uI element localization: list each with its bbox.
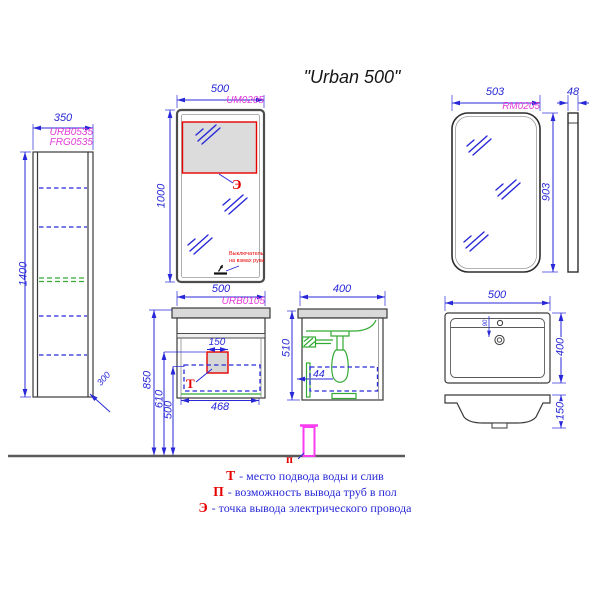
legend-row-pipes: П- возможность вывода труб в пол bbox=[130, 483, 480, 499]
sink-depth-label: 400 bbox=[556, 337, 567, 357]
um-height-label: 1000 bbox=[157, 184, 168, 208]
um-width-label: 500 bbox=[211, 84, 229, 95]
vanity-front-drawing bbox=[149, 291, 270, 456]
power-point-marker: Э bbox=[232, 179, 242, 193]
access-size-label: 150 bbox=[209, 338, 226, 348]
floor-and-pipe-drawing bbox=[8, 426, 405, 460]
drawing-canvas: "Urban 500" 350 1400 300 URB0535 FRG0535… bbox=[0, 0, 600, 600]
side-width-label: 400 bbox=[333, 284, 351, 295]
um-code: UM0205 bbox=[226, 96, 264, 106]
height-shelf-label: 500 bbox=[164, 401, 175, 419]
legend-row-water: Т- место подвода воды и слив bbox=[130, 467, 480, 483]
water-access-zone bbox=[207, 352, 228, 373]
sink-profile-drawing bbox=[445, 395, 566, 428]
rm-mirror-drawing bbox=[452, 95, 589, 272]
side-countertop bbox=[298, 309, 387, 318]
side-body bbox=[302, 318, 383, 400]
cabinet-height-label: 1400 bbox=[19, 262, 30, 286]
water-point-marker: Т bbox=[186, 377, 195, 390]
tall-cabinet-drawing bbox=[20, 124, 110, 412]
sensor-note-line2: на взмах руки bbox=[229, 259, 264, 265]
rm-code: RM0205 bbox=[502, 102, 540, 112]
inner-width-label: 468 bbox=[211, 402, 229, 413]
hole-offset-label: 90 bbox=[483, 320, 489, 327]
vanity-code: URB0105 bbox=[222, 297, 265, 307]
tall-cabinet-body bbox=[33, 152, 93, 397]
rm-mirror-frame bbox=[452, 113, 540, 272]
side-height-label: 510 bbox=[282, 339, 293, 357]
legend-row-electric: Э- точка вывода электрического провода bbox=[130, 499, 480, 515]
legend-text-pipes: - возможность вывода труб в пол bbox=[228, 485, 397, 499]
legend-marker-electric: Э bbox=[199, 500, 208, 515]
height-total-label: 850 bbox=[143, 371, 154, 389]
vanity-countertop bbox=[172, 308, 270, 318]
legend-marker-pipes: П bbox=[213, 484, 224, 499]
sink-profile-height-label: 150 bbox=[556, 401, 567, 421]
sink-width-label: 500 bbox=[488, 290, 506, 301]
floor-pipe-outlet bbox=[304, 427, 315, 456]
rm-width-label: 503 bbox=[486, 87, 504, 98]
vanity-side-drawing bbox=[287, 291, 387, 400]
rm-height-label: 903 bbox=[542, 183, 553, 201]
um-led-zone bbox=[183, 122, 257, 173]
sink-profile-shape bbox=[445, 395, 550, 423]
legend-text-water: - место подвода воды и слив bbox=[239, 469, 384, 483]
side-offset-label: 44 bbox=[313, 369, 325, 380]
rm-mirror-side-view bbox=[568, 113, 578, 272]
sink-top-drawing bbox=[445, 296, 566, 383]
rm-depth-label: 48 bbox=[567, 87, 579, 98]
drain-hole bbox=[495, 335, 504, 344]
vanity-width-label: 500 bbox=[212, 284, 230, 295]
legend-marker-water: Т bbox=[226, 468, 235, 483]
cabinet-code-2: FRG0535 bbox=[50, 138, 93, 148]
page-title: "Urban 500" bbox=[304, 68, 401, 86]
sensor-note-line1: Выключатель bbox=[229, 252, 264, 258]
legend: Т- место подвода воды и слив П- возможно… bbox=[130, 467, 480, 515]
floor-pipe-marker: п bbox=[286, 453, 293, 465]
cabinet-width-label: 350 bbox=[54, 113, 72, 124]
legend-text-electric: - точка вывода электрического провода bbox=[212, 501, 412, 515]
faucet-hole bbox=[497, 320, 502, 325]
